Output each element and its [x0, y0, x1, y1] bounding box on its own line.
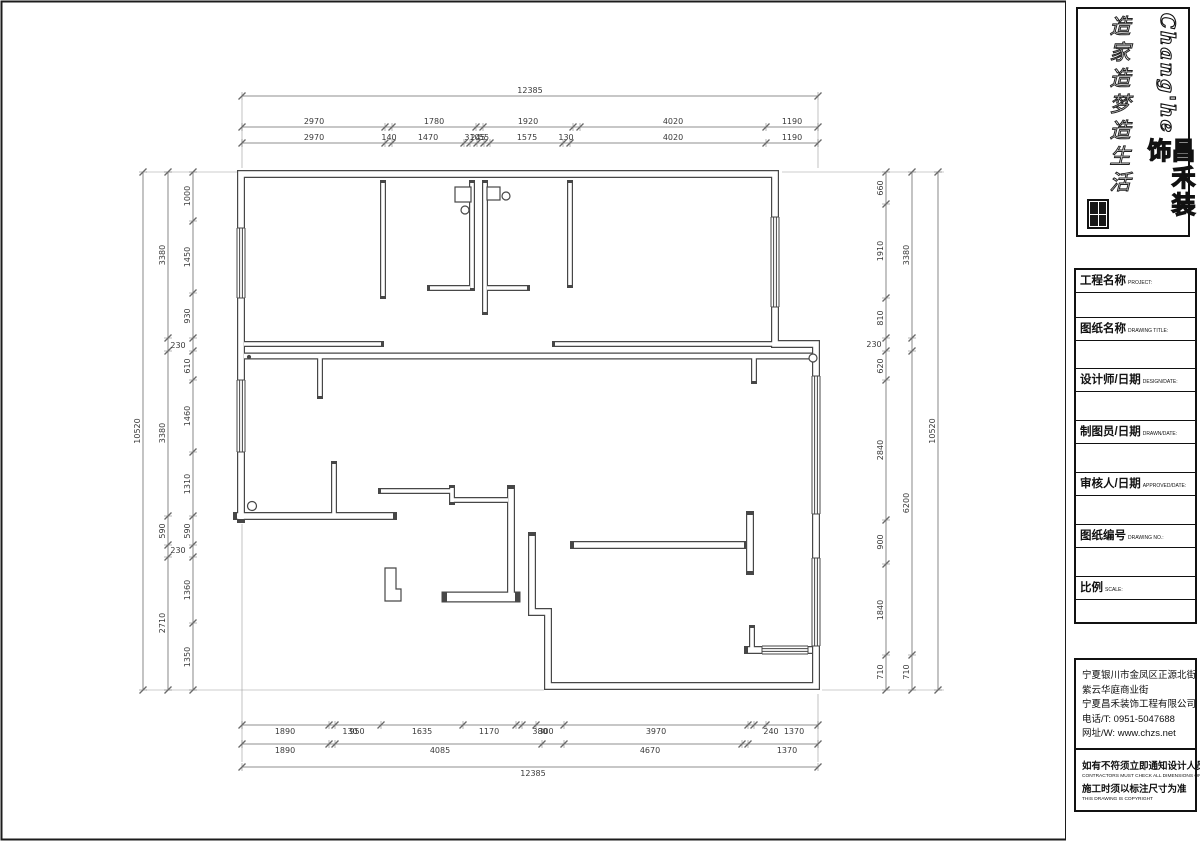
- dim-label: 230: [170, 546, 185, 555]
- symbol-circle: [248, 502, 257, 511]
- dim-label: 230: [866, 340, 881, 349]
- titleblock-field-value: [1076, 600, 1195, 622]
- window: [812, 558, 820, 646]
- titleblock-field-label: 审核人/日期APPROVED/DATE:: [1076, 473, 1195, 496]
- dim-label: 55: [479, 133, 489, 142]
- dim-label: 1360: [183, 580, 192, 600]
- dim-label: 810: [876, 310, 885, 325]
- brand-logo-box: 造家造梦造生活 Chang'he 昌禾装饰: [1076, 7, 1190, 237]
- dim-label: 1350: [183, 647, 192, 667]
- dim-label: 660: [876, 180, 885, 195]
- floorplan-canvas: 1238529701780192040201190297014014703102…: [0, 0, 1066, 841]
- dim-label: 710: [902, 664, 911, 679]
- dim-label: 1890: [275, 746, 295, 755]
- column: [385, 568, 401, 601]
- address-line: 紫云华庭商业街: [1082, 684, 1190, 699]
- titleblock-field-label: 设计师/日期DESIGN/DATE:: [1076, 369, 1195, 392]
- dim-label: 3380: [158, 423, 167, 443]
- brand-logo-column: Chang'he 昌禾装饰: [1156, 13, 1180, 233]
- dim-label: 1840: [876, 600, 885, 620]
- titleblock-field-label: 图纸名称DRAWING TITLE:: [1076, 318, 1195, 341]
- dim-label: 1460: [183, 406, 192, 426]
- titleblock-field-value: [1076, 548, 1195, 577]
- brand-logo-cjk: 昌禾装饰: [1144, 138, 1192, 233]
- duct-box: [487, 187, 500, 200]
- dim-label: 12385: [520, 769, 545, 778]
- dim-label: 1910: [876, 241, 885, 261]
- dim-label: 1190: [782, 133, 802, 142]
- titleblock-field-label: 图纸编号DRAWING NO.:: [1076, 525, 1195, 548]
- dim-label: 230: [170, 341, 185, 350]
- dim-label: 300: [538, 727, 553, 736]
- dim-label: 930: [183, 308, 192, 323]
- dim-label: 1780: [424, 117, 444, 126]
- dim-label: 1470: [418, 133, 438, 142]
- symbol-circle: [248, 356, 251, 359]
- dim-label: 590: [158, 523, 167, 538]
- brand-logo-latin: Chang'he: [1158, 13, 1178, 134]
- dim-label: 140: [381, 133, 396, 142]
- dim-label: 1920: [518, 117, 538, 126]
- dim-label: 3380: [902, 245, 911, 265]
- dim-label: 10520: [133, 418, 142, 443]
- drawing-notes: 如有不符须立即通知设计人员CONTRACTORS MUST CHECK ALL …: [1076, 748, 1195, 810]
- dim-label: 1635: [412, 727, 432, 736]
- window: [237, 380, 245, 452]
- dim-label: 6200: [902, 493, 911, 513]
- titleblock-field-value: [1076, 341, 1195, 369]
- dim-label: 4020: [663, 117, 683, 126]
- note-cn: 施工时须以标注尺寸为准: [1082, 784, 1190, 795]
- dim-label: 4085: [430, 746, 450, 755]
- dim-label: 12385: [517, 86, 542, 95]
- dim-label: 4020: [663, 133, 683, 142]
- dim-label: 2970: [304, 117, 324, 126]
- dim-label: 1890: [275, 727, 295, 736]
- dim-label: 710: [876, 664, 885, 679]
- dim-label: 10520: [928, 418, 937, 443]
- dim-label: 3970: [646, 727, 666, 736]
- titleblock-field-value: [1076, 496, 1195, 525]
- brand-seal-stamp: [1087, 199, 1109, 229]
- dim-label: 3380: [158, 245, 167, 265]
- dim-label: 590: [183, 523, 192, 538]
- dim-label: 1170: [479, 727, 499, 736]
- address-box: 宁夏银川市金凤区正源北街紫云华庭商业街宁夏昌禾装饰工程有限公司电话/T: 095…: [1074, 658, 1197, 812]
- dim-label: 240: [763, 727, 778, 736]
- address-line: 宁夏银川市金凤区正源北街: [1082, 669, 1190, 684]
- titleblock-field-value: [1076, 293, 1195, 318]
- dim-label: 2970: [304, 133, 324, 142]
- dim-label: 620: [876, 358, 885, 373]
- dim-label: 1370: [777, 746, 797, 755]
- dim-label: 1190: [782, 117, 802, 126]
- wall: [241, 174, 816, 686]
- symbol-circle: [461, 206, 469, 214]
- brand-slogan: 造家造梦造生活: [1108, 15, 1130, 197]
- symbol-circle: [809, 354, 817, 362]
- dim-label: 1450: [183, 247, 192, 267]
- titleblock-field-label: 比例SCALE:: [1076, 577, 1195, 600]
- company-address: 宁夏银川市金凤区正源北街紫云华庭商业街宁夏昌禾装饰工程有限公司电话/T: 095…: [1076, 660, 1195, 748]
- dim-label: 1310: [183, 474, 192, 494]
- titleblock-field-label: 制图员/日期DRAWN/DATE:: [1076, 421, 1195, 444]
- dim-label: 1575: [517, 133, 537, 142]
- note-en: CONTRACTORS MUST CHECK ALL DIMENSIONS ON…: [1082, 773, 1190, 780]
- address-line: 电话/T: 0951-5047688: [1082, 713, 1190, 728]
- titleblock-field-value: [1076, 444, 1195, 473]
- title-panel: 造家造梦造生活 Chang'he 昌禾装饰 工程名称PROJECT:图纸名称DR…: [1066, 0, 1200, 841]
- dim-label: 2840: [876, 440, 885, 460]
- dim-label: 610: [183, 358, 192, 373]
- dim-label: 900: [876, 534, 885, 549]
- titleblock-field-label: 工程名称PROJECT:: [1076, 270, 1195, 293]
- dim-label: 950: [349, 727, 364, 736]
- dim-label: 2710: [158, 613, 167, 633]
- titleblock-table: 工程名称PROJECT:图纸名称DRAWING TITLE:设计师/日期DESI…: [1074, 268, 1197, 624]
- dim-label: 130: [558, 133, 573, 142]
- titleblock-field-value: [1076, 392, 1195, 421]
- dim-label: 1370: [784, 727, 804, 736]
- window: [762, 646, 808, 654]
- address-line: 网址/W: www.chzs.net: [1082, 727, 1190, 742]
- note-cn: 如有不符须立即通知设计人员: [1082, 761, 1190, 772]
- drawing-sheet: 1238529701780192040201190297014014703102…: [0, 0, 1200, 841]
- address-line: 宁夏昌禾装饰工程有限公司: [1082, 698, 1190, 713]
- symbol-circle: [502, 192, 510, 200]
- window: [812, 376, 820, 514]
- dim-label: 4670: [640, 746, 660, 755]
- dim-label: 1000: [183, 186, 192, 206]
- note-en: THIS DRAWING IS COPYRIGHT: [1082, 796, 1190, 803]
- window: [237, 228, 245, 298]
- duct-box: [455, 187, 471, 202]
- window: [771, 217, 779, 307]
